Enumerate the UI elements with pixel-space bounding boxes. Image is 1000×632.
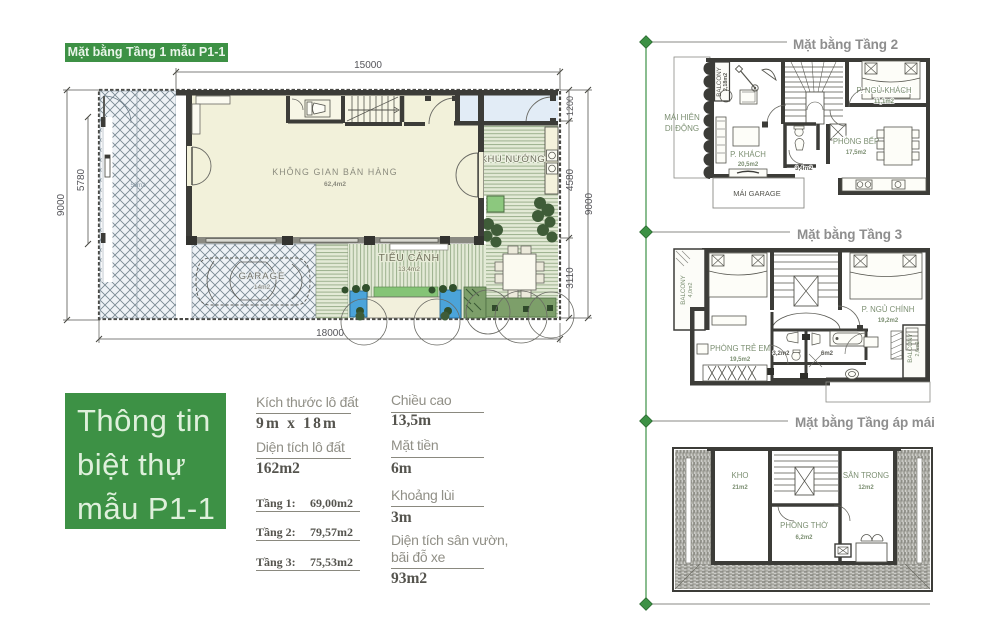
svg-text:BALCONY: BALCONY bbox=[716, 67, 723, 97]
svg-text:6m2: 6m2 bbox=[821, 351, 834, 357]
svg-text:GARAGE: GARAGE bbox=[239, 271, 286, 282]
svg-text:MÁI GARAGE: MÁI GARAGE bbox=[733, 189, 781, 198]
svg-text:20,5m2: 20,5m2 bbox=[738, 162, 759, 168]
svg-text:18000: 18000 bbox=[316, 328, 344, 339]
svg-text:15000: 15000 bbox=[354, 60, 382, 71]
svg-text:12m2: 12m2 bbox=[858, 485, 874, 491]
svg-text:PHÒNG TRẺ EM: PHÒNG TRẺ EM bbox=[710, 344, 770, 353]
svg-text:P. KHÁCH: P. KHÁCH bbox=[730, 150, 766, 159]
svg-text:BALCONY: BALCONY bbox=[680, 275, 687, 305]
svg-text:1200: 1200 bbox=[565, 96, 575, 116]
svg-text:Mặt bằng Tầng 3: Mặt bằng Tầng 3 bbox=[797, 227, 903, 242]
svg-text:19,2m2: 19,2m2 bbox=[878, 318, 899, 324]
svg-text:MÁI HIÊN: MÁI HIÊN bbox=[664, 113, 700, 122]
svg-text:5780: 5780 bbox=[76, 168, 87, 191]
svg-text:62,4m2: 62,4m2 bbox=[324, 181, 346, 188]
svg-text:TIỂU CẢNH: TIỂU CẢNH bbox=[378, 251, 439, 264]
svg-text:3,4m2: 3,4m2 bbox=[795, 165, 813, 172]
svg-text:DI ĐỘNG: DI ĐỘNG bbox=[665, 124, 699, 133]
svg-text:Mặt bằng Tầng áp mái: Mặt bằng Tầng áp mái bbox=[795, 415, 935, 430]
svg-text:P. NGỦ CHÍNH: P. NGỦ CHÍNH bbox=[862, 305, 915, 314]
svg-text:3110: 3110 bbox=[565, 267, 576, 289]
svg-text:PHÒNG THỜ: PHÒNG THỜ bbox=[780, 521, 828, 530]
svg-text:KHU NƯỚNG: KHU NƯỚNG bbox=[481, 154, 546, 165]
svg-text:SÂN TRONG: SÂN TRONG bbox=[843, 471, 889, 480]
svg-text:6,2m2: 6,2m2 bbox=[795, 535, 813, 541]
svg-text:3,2m2: 3,2m2 bbox=[772, 351, 790, 357]
svg-text:4580: 4580 bbox=[565, 168, 576, 191]
svg-text:19,5m2: 19,5m2 bbox=[730, 357, 751, 363]
svg-text:13,4m2: 13,4m2 bbox=[398, 266, 420, 273]
svg-text:BALCONY: BALCONY bbox=[907, 333, 914, 363]
svg-text:2,18m2: 2,18m2 bbox=[723, 73, 729, 91]
svg-text:4,0m2: 4,0m2 bbox=[688, 283, 694, 298]
svg-text:9000: 9000 bbox=[584, 192, 595, 215]
svg-text:17,5m2: 17,5m2 bbox=[846, 150, 867, 156]
svg-text:9000: 9000 bbox=[56, 193, 67, 216]
svg-text:14m2: 14m2 bbox=[254, 284, 271, 291]
svg-text:Mặt bằng Tầng 2: Mặt bằng Tầng 2 bbox=[793, 37, 898, 52]
svg-text:56m2: 56m2 bbox=[130, 183, 146, 189]
svg-text:P. NGỦ KHÁCH: P. NGỦ KHÁCH bbox=[856, 86, 911, 95]
svg-text:KHO: KHO bbox=[732, 471, 749, 480]
svg-text:21m2: 21m2 bbox=[732, 485, 748, 491]
svg-text:KHÔNG GIAN BÁN HÀNG: KHÔNG GIAN BÁN HÀNG bbox=[272, 167, 398, 177]
svg-text:PHÒNG BẾP: PHÒNG BẾP bbox=[833, 136, 879, 146]
svg-text:11,1m2: 11,1m2 bbox=[874, 99, 895, 105]
